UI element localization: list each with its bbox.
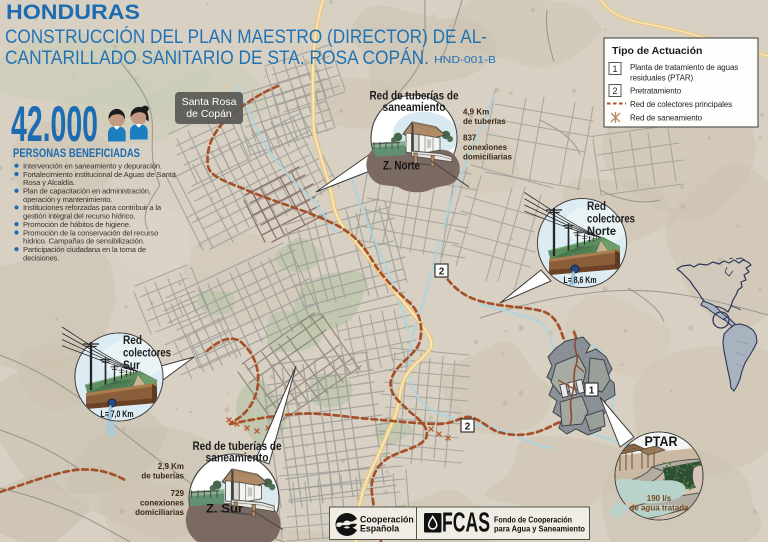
svg-text:729: 729 xyxy=(171,489,185,498)
svg-text:2: 2 xyxy=(612,86,617,96)
svg-text:Red de tuberías de: Red de tuberías de xyxy=(193,441,282,453)
svg-text:de tuberías: de tuberías xyxy=(463,117,506,126)
svg-text:saneamiento: saneamiento xyxy=(383,102,446,114)
svg-text:Z. Norte: Z. Norte xyxy=(383,161,420,173)
svg-text:Española: Española xyxy=(360,524,399,534)
svg-text:Norte: Norte xyxy=(587,226,616,238)
svg-text:decisiones.: decisiones. xyxy=(23,253,59,262)
svg-text:2: 2 xyxy=(439,267,445,278)
svg-text:colectores: colectores xyxy=(123,348,171,360)
svg-text:4,9 Km: 4,9 Km xyxy=(463,108,489,117)
svg-text:Red de colectores principales: Red de colectores principales xyxy=(630,100,732,109)
svg-text:CANTARILLADO SANITARIO DE STA.: CANTARILLADO SANITARIO DE STA. ROSA COPÁ… xyxy=(5,48,429,69)
svg-text:Red de tuberías de: Red de tuberías de xyxy=(370,91,459,103)
svg-text:Red: Red xyxy=(123,335,142,347)
svg-text:PERSONAS BENEFICIADAS: PERSONAS BENEFICIADAS xyxy=(13,148,140,160)
svg-text:42.000: 42.000 xyxy=(11,96,98,152)
svg-text:HND-001-B: HND-001-B xyxy=(434,54,496,66)
svg-text:CONSTRUCCIÓN DEL PLAN MAESTRO: CONSTRUCCIÓN DEL PLAN MAESTRO (DIRECTOR)… xyxy=(5,26,487,48)
svg-text:Red de saneamiento: Red de saneamiento xyxy=(630,114,703,123)
svg-text:FCAS: FCAS xyxy=(442,507,490,538)
svg-text:de tuberías: de tuberías xyxy=(141,472,184,481)
svg-text:de agua tratada: de agua tratada xyxy=(629,504,689,513)
svg-text:HONDURAS: HONDURAS xyxy=(6,1,140,24)
svg-text:2,9 Km: 2,9 Km xyxy=(158,462,184,471)
svg-text:L= 7,0 Km: L= 7,0 Km xyxy=(101,409,134,419)
svg-text:1: 1 xyxy=(612,64,617,74)
svg-text:domiciliarias: domiciliarias xyxy=(135,508,184,517)
svg-text:domiciliarias: domiciliarias xyxy=(463,153,512,162)
svg-text:L= 8,6 Km: L= 8,6 Km xyxy=(564,275,597,285)
svg-text:Sur: Sur xyxy=(123,360,140,372)
svg-text:residuales (PTAR): residuales (PTAR) xyxy=(630,74,693,83)
svg-text:PTAR: PTAR xyxy=(645,434,678,449)
svg-text:Z. Sur: Z. Sur xyxy=(206,504,244,516)
svg-text:colectores: colectores xyxy=(587,214,635,226)
svg-text:Tipo de Actuación: Tipo de Actuación xyxy=(612,45,702,57)
svg-text:de Copán: de Copán xyxy=(186,108,232,120)
svg-text:Pretratamiento: Pretratamiento xyxy=(630,87,682,96)
svg-text:Santa Rosa: Santa Rosa xyxy=(182,96,237,108)
svg-text:190 l/s: 190 l/s xyxy=(647,494,672,503)
svg-text:conexiones: conexiones xyxy=(140,499,185,508)
svg-text:Fondo de Cooperación: Fondo de Cooperación xyxy=(494,516,572,525)
svg-text:837: 837 xyxy=(463,134,477,143)
svg-text:para Agua y Saneamiento: para Agua y Saneamiento xyxy=(494,525,585,534)
svg-text:1: 1 xyxy=(589,386,595,397)
svg-text:conexiones: conexiones xyxy=(463,143,508,152)
svg-text:2: 2 xyxy=(465,422,471,433)
svg-text:Planta de tratamiento de aguas: Planta de tratamiento de aguas xyxy=(630,63,738,72)
svg-text:saneamiento: saneamiento xyxy=(206,453,269,465)
svg-text:Red: Red xyxy=(587,201,606,213)
